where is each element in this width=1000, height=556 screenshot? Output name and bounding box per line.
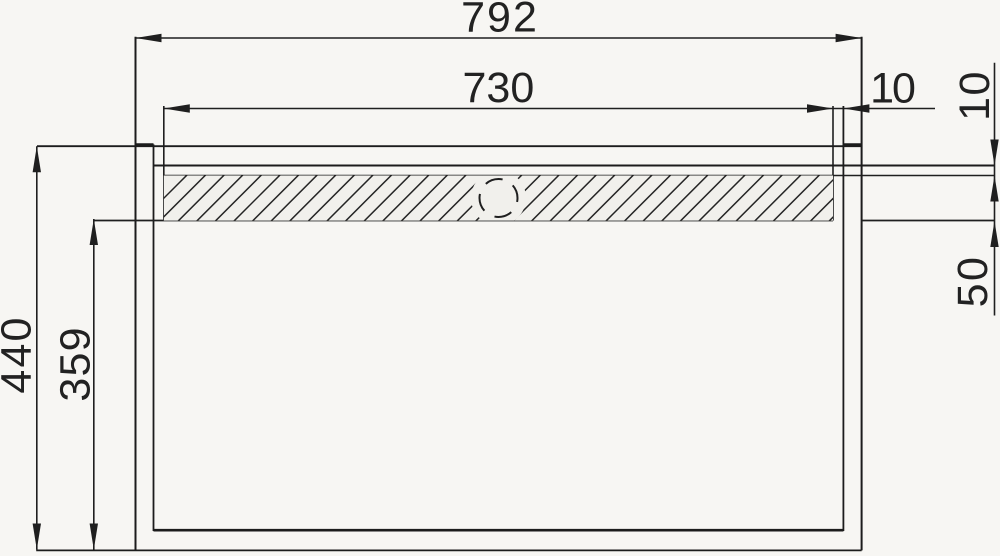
svg-text:10: 10 bbox=[870, 65, 915, 113]
svg-text:440: 440 bbox=[0, 315, 41, 393]
svg-text:730: 730 bbox=[463, 64, 535, 112]
svg-text:359: 359 bbox=[51, 326, 99, 401]
svg-text:50: 50 bbox=[949, 255, 997, 308]
svg-text:10: 10 bbox=[951, 70, 999, 121]
svg-text:792: 792 bbox=[461, 0, 539, 41]
